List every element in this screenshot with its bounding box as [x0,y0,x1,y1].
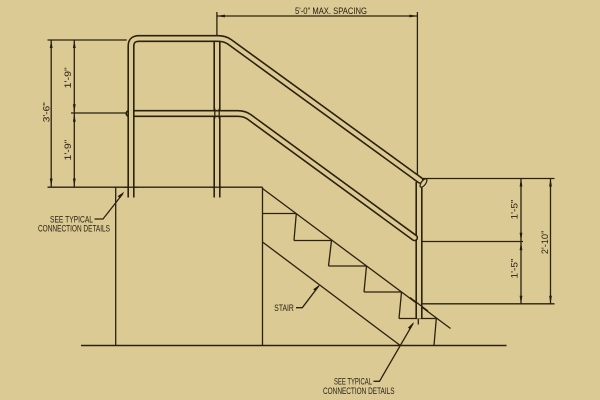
svg-text:1'-5": 1'-5" [510,200,520,220]
svg-text:1'-5": 1'-5" [510,259,520,279]
svg-text:1'-9": 1'-9" [63,140,73,161]
svg-text:5'-0" MAX. SPACING: 5'-0" MAX. SPACING [295,6,367,16]
svg-text:3'-6": 3'-6" [41,102,51,122]
svg-text:STAIR: STAIR [274,303,294,313]
svg-text:2'-10": 2'-10" [540,231,550,255]
svg-text:CONNECTION DETAILS: CONNECTION DETAILS [323,386,395,396]
svg-text:CONNECTION DETAILS: CONNECTION DETAILS [38,223,110,233]
svg-text:1'-9": 1'-9" [63,67,73,88]
